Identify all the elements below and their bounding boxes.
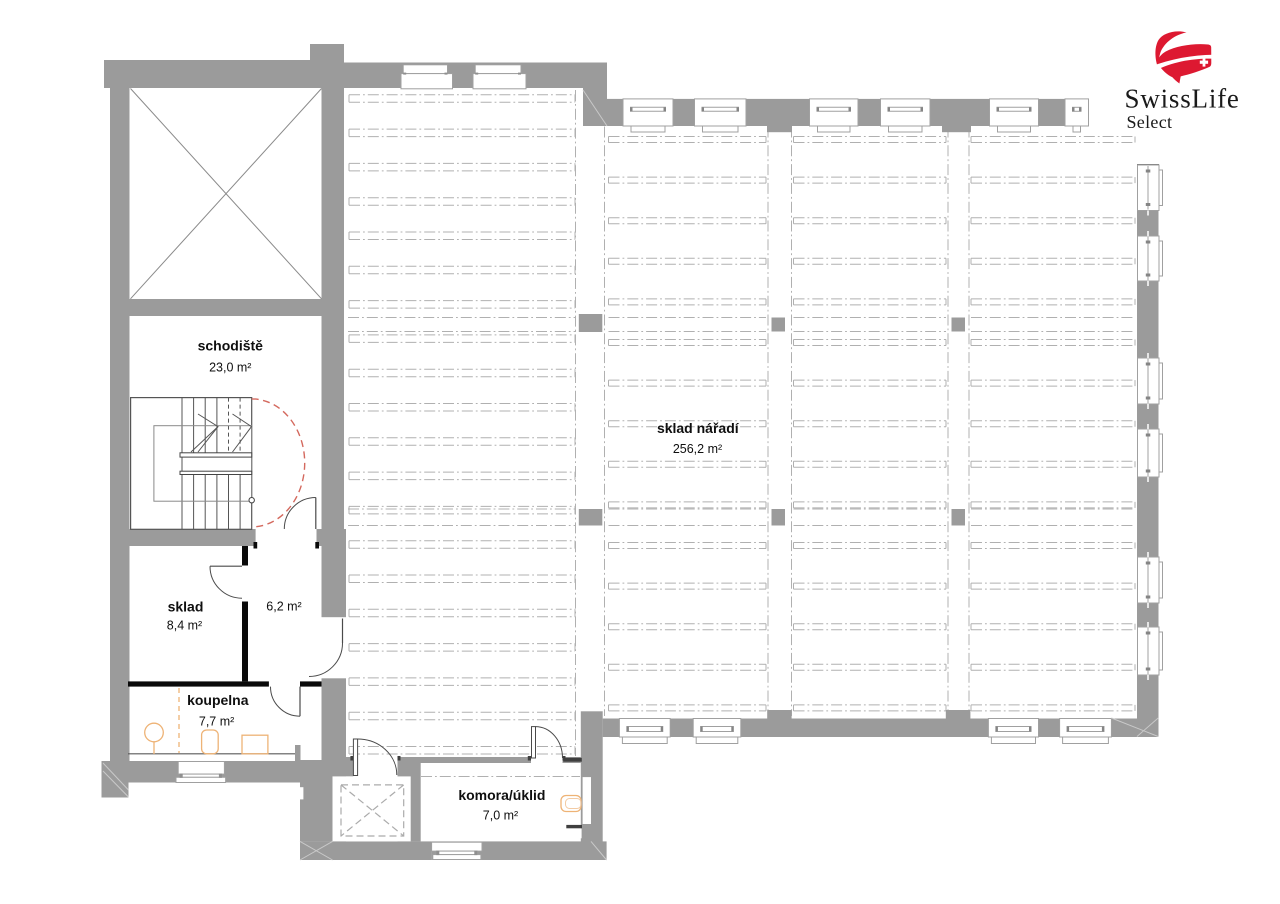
svg-text:7,0 m²: 7,0 m² — [483, 808, 518, 822]
svg-text:sklad nářadí: sklad nářadí — [657, 420, 740, 436]
svg-text:schodiště: schodiště — [198, 338, 264, 354]
svg-text:Select: Select — [1127, 112, 1173, 132]
svg-text:7,7 m²: 7,7 m² — [199, 715, 234, 729]
svg-text:8,4 m²: 8,4 m² — [167, 619, 202, 633]
svg-text:23,0 m²: 23,0 m² — [209, 361, 251, 375]
svg-text:koupelna: koupelna — [187, 692, 249, 708]
svg-text:sklad: sklad — [168, 599, 204, 615]
svg-text:SwissLife: SwissLife — [1125, 84, 1240, 114]
svg-text:komora/úklid: komora/úklid — [458, 787, 545, 803]
svg-text:6,2 m²: 6,2 m² — [266, 600, 301, 614]
svg-text:256,2 m²: 256,2 m² — [673, 442, 722, 456]
